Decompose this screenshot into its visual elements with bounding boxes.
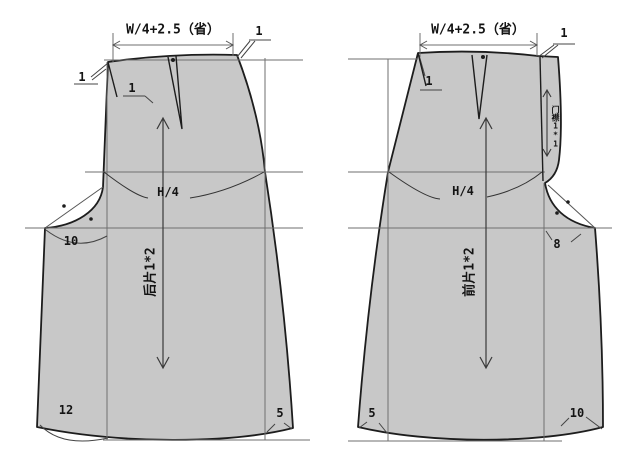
back-piece-name-label: 后片1*2 bbox=[145, 247, 158, 296]
back-dart-dot bbox=[171, 58, 175, 62]
front-hem-right-label: 10 bbox=[570, 407, 584, 419]
back-waist-dimension-label: W/4+2.5（省） bbox=[126, 24, 220, 37]
front-waist-dimension-label: W/4+2.5（省） bbox=[431, 24, 525, 37]
front-allowance-top-left-label: 1 bbox=[425, 75, 432, 87]
placket-label: 门襟1*1 bbox=[551, 106, 559, 149]
front-crotch-dot-2 bbox=[555, 211, 559, 215]
back-hip-line-label: H/4 bbox=[157, 186, 179, 198]
back-hem-left-label: 12 bbox=[59, 404, 73, 416]
pattern-canvas bbox=[0, 0, 640, 474]
back-crotch-dot-1 bbox=[62, 204, 66, 208]
front-piece bbox=[348, 33, 612, 441]
back-allowance-top-left-inner-label: 1 bbox=[128, 82, 135, 94]
front-dart-dot bbox=[481, 55, 485, 59]
back-allowance-top-right-label: 1 bbox=[255, 25, 262, 37]
back-allowance-top-left-outer-label: 1 bbox=[78, 71, 85, 83]
back-crotch-dot-2 bbox=[89, 217, 93, 221]
front-crotch-dot-1 bbox=[566, 200, 570, 204]
pattern-diagram: W/4+2.5（省） 1 1 1 H/4 后片1*2 10 12 5 W/4+2… bbox=[0, 0, 640, 474]
back-hem-right-label: 5 bbox=[276, 407, 283, 419]
front-hip-line-label: H/4 bbox=[452, 185, 474, 197]
back-crotch-extension-label: 10 bbox=[64, 235, 78, 247]
front-piece-name-label: 前片1*2 bbox=[464, 247, 477, 296]
front-hem-left-label: 5 bbox=[368, 407, 375, 419]
front-allowance-top-right-label: 1 bbox=[560, 27, 567, 39]
front-crotch-extension-label: 8 bbox=[553, 238, 560, 250]
